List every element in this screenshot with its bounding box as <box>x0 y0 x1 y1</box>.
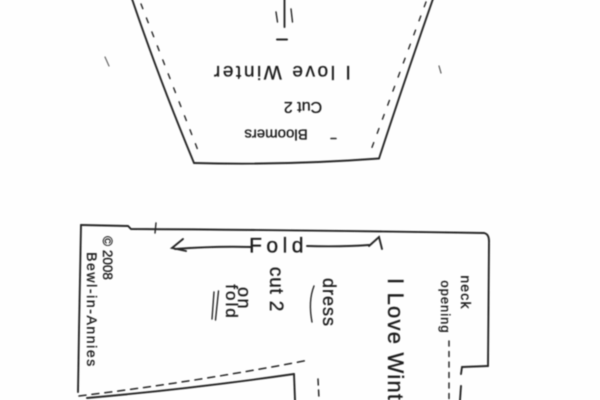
svg-text:fold: fold <box>222 284 241 319</box>
svg-text:neck: neck <box>458 275 474 309</box>
svg-text:Bewl-in-Annies: Bewl-in-Annies <box>84 252 100 368</box>
svg-text:opening: opening <box>438 280 453 333</box>
svg-text:cut 2: cut 2 <box>265 267 286 312</box>
svg-text:Cut 2: Cut 2 <box>284 98 322 115</box>
svg-text:I Love Winter: I Love Winter <box>383 278 408 400</box>
svg-text:© 2008: © 2008 <box>100 236 115 280</box>
svg-text:Bloomers: Bloomers <box>244 126 307 143</box>
svg-text:I love Winter: I love Winter <box>211 61 350 82</box>
svg-text:Fold: Fold <box>249 235 308 258</box>
svg-text:dress: dress <box>319 278 339 327</box>
